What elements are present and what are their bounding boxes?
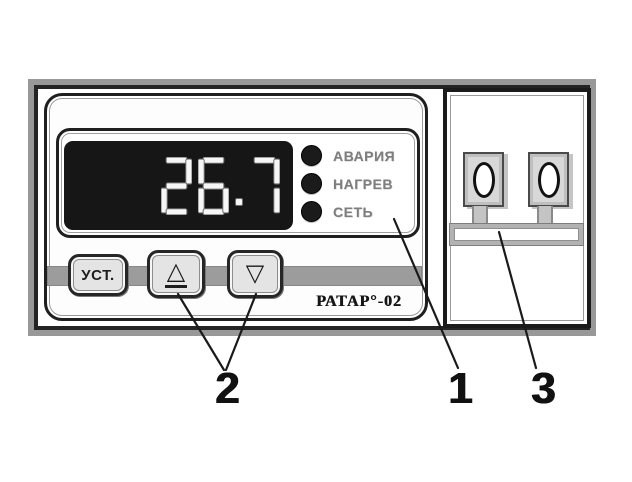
terminal-screw-left [463, 152, 504, 207]
callout-number-2: 2 [205, 367, 249, 411]
heating-led-icon [301, 173, 322, 194]
terminal-strip [450, 224, 583, 245]
callout-number-1: 1 [438, 367, 482, 411]
lcd-digits [161, 157, 280, 215]
brand-label: РАТАР°-02 [298, 293, 420, 311]
indicator-block: АВАРИЯ НАГРЕВ СЕТЬ [301, 145, 413, 229]
indicator-row-alarm: АВАРИЯ [301, 145, 413, 166]
lcd-display [64, 141, 293, 230]
up-arrow-icon: △ [167, 260, 185, 284]
callout-number-3: 3 [521, 367, 565, 411]
up-arrow-underline [165, 285, 187, 288]
screw-slot-icon [473, 162, 495, 198]
power-led-icon [301, 201, 322, 222]
up-button[interactable]: △ [147, 250, 205, 298]
down-arrow-icon: ▽ [246, 262, 264, 286]
indicator-row-power: СЕТЬ [301, 201, 413, 222]
heating-led-label: НАГРЕВ [333, 176, 393, 192]
set-button[interactable]: УСТ. [68, 254, 128, 296]
power-led-label: СЕТЬ [333, 204, 373, 220]
terminal-screw-right [528, 152, 569, 207]
down-button[interactable]: ▽ [227, 250, 283, 298]
alarm-led-label: АВАРИЯ [333, 148, 395, 164]
indicator-row-heating: НАГРЕВ [301, 173, 413, 194]
alarm-led-icon [301, 145, 322, 166]
screw-slot-icon [538, 162, 560, 198]
manual-figure: { "device": { "display": { "value": "26.… [0, 0, 632, 482]
set-button-label: УСТ. [81, 267, 114, 284]
terminal-compartment [443, 88, 591, 328]
